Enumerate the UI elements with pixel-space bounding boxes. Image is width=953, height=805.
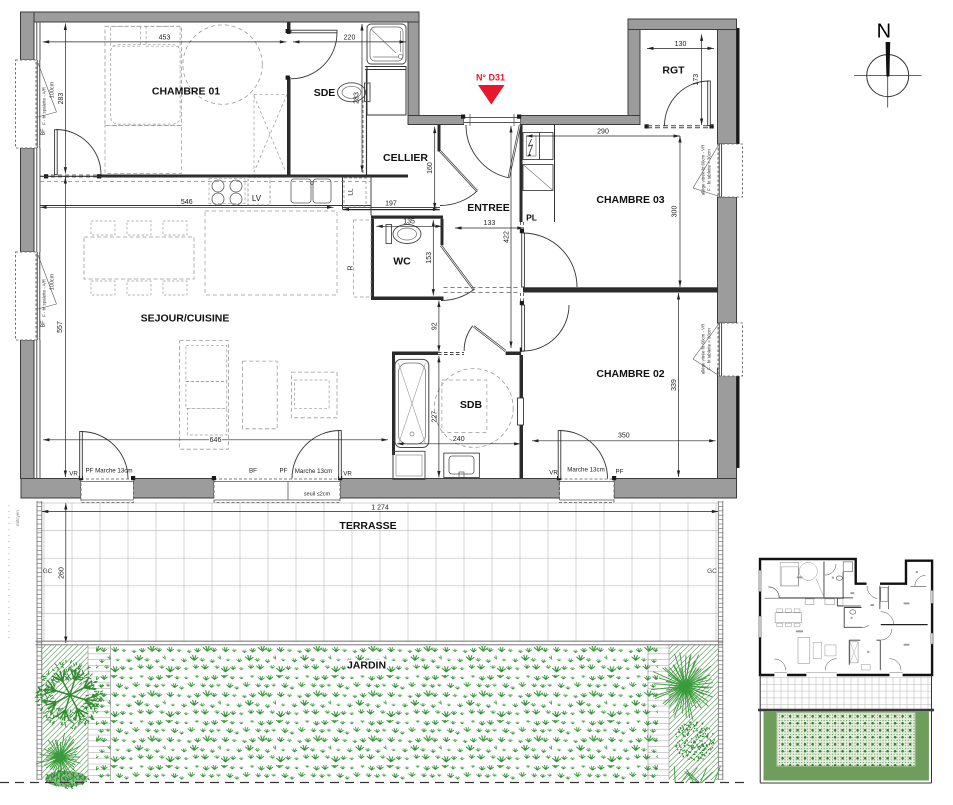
svg-text:N° D31: N° D31: [476, 73, 505, 83]
svg-text:F - ht spalette - A/R: F - ht spalette - A/R: [42, 279, 47, 317]
svg-text:PF: PF: [280, 468, 288, 475]
svg-text:557: 557: [57, 321, 64, 333]
svg-text:260: 260: [58, 567, 65, 579]
svg-text:seuil ≤2cm: seuil ≤2cm: [304, 492, 331, 498]
svg-text:LV: LV: [252, 194, 262, 203]
svg-text:JARDIN: JARDIN: [347, 660, 386, 672]
svg-text:TERRASSE: TERRASSE: [339, 520, 396, 532]
svg-text:allège vitrée ht 60cm - VR: allège vitrée ht 60cm - VR: [701, 324, 706, 375]
svg-text:100cm: 100cm: [50, 81, 56, 98]
svg-text:646: 646: [210, 437, 222, 444]
svg-text:CELLIER: CELLIER: [383, 152, 428, 164]
svg-text:PF: PF: [616, 469, 624, 476]
svg-text:VR: VR: [69, 471, 78, 478]
svg-text:BF: BF: [41, 320, 47, 328]
svg-text:BF: BF: [41, 128, 47, 136]
svg-text:SEJOUR/CUISINE: SEJOUR/CUISINE: [141, 313, 230, 325]
svg-text:546: 546: [181, 199, 193, 206]
svg-text:CHAMBRE 01: CHAMBRE 01: [152, 86, 220, 98]
svg-text:CHAMBRE 02: CHAMBRE 02: [596, 368, 664, 380]
svg-text:1 274: 1 274: [371, 504, 389, 511]
svg-text:SDE: SDE: [314, 87, 336, 99]
svg-text:VR: VR: [343, 471, 352, 478]
svg-text:F - ht tablette = 30cm: F - ht tablette = 30cm: [707, 149, 712, 191]
svg-text:Marche 13cm: Marche 13cm: [567, 467, 604, 474]
svg-text:283: 283: [58, 93, 65, 105]
svg-text:220: 220: [344, 35, 356, 42]
svg-text:283: 283: [354, 92, 361, 104]
svg-text:227: 227: [431, 411, 438, 423]
svg-text:173: 173: [693, 74, 700, 86]
svg-text:350: 350: [618, 433, 630, 440]
svg-text:Marche 13cm: Marche 13cm: [295, 468, 332, 475]
svg-text:PF Marche 13cm: PF Marche 13cm: [85, 468, 132, 475]
svg-text:422: 422: [504, 231, 511, 243]
svg-text:SDB: SDB: [460, 399, 483, 411]
svg-text:290: 290: [597, 129, 609, 136]
svg-text:mitoyen: mitoyen: [15, 510, 20, 526]
svg-text:ENTREE: ENTREE: [467, 202, 510, 214]
svg-text:LL: LL: [348, 188, 355, 196]
svg-text:PL: PL: [526, 213, 537, 223]
svg-text:300: 300: [672, 206, 679, 218]
svg-text:92: 92: [431, 322, 438, 330]
svg-text:GC: GC: [707, 568, 717, 575]
svg-text:BF: BF: [249, 468, 257, 475]
svg-text:VR: VR: [549, 470, 558, 477]
svg-text:RGT: RGT: [662, 65, 685, 77]
svg-text:WC: WC: [393, 256, 411, 268]
svg-text:240: 240: [453, 436, 465, 443]
svg-text:153: 153: [426, 252, 433, 264]
svg-text:CHAMBRE 03: CHAMBRE 03: [596, 194, 664, 206]
svg-text:135: 135: [403, 219, 415, 226]
svg-text:100cm: 100cm: [50, 273, 56, 290]
svg-text:N: N: [877, 21, 891, 43]
svg-text:GC: GC: [43, 568, 53, 575]
svg-text:133: 133: [484, 220, 496, 227]
svg-text:197: 197: [385, 201, 397, 208]
svg-text:F - ht spalette - A/R: F - ht spalette - A/R: [42, 87, 47, 125]
svg-text:453: 453: [159, 35, 171, 42]
svg-text:130: 130: [675, 41, 687, 48]
svg-text:339: 339: [671, 379, 678, 391]
svg-text:F - ht tablette = 30cm: F - ht tablette = 30cm: [707, 328, 712, 370]
svg-text:160: 160: [427, 162, 434, 174]
svg-text:allège vitrée ht 60cm - VR: allège vitrée ht 60cm - VR: [701, 145, 706, 196]
